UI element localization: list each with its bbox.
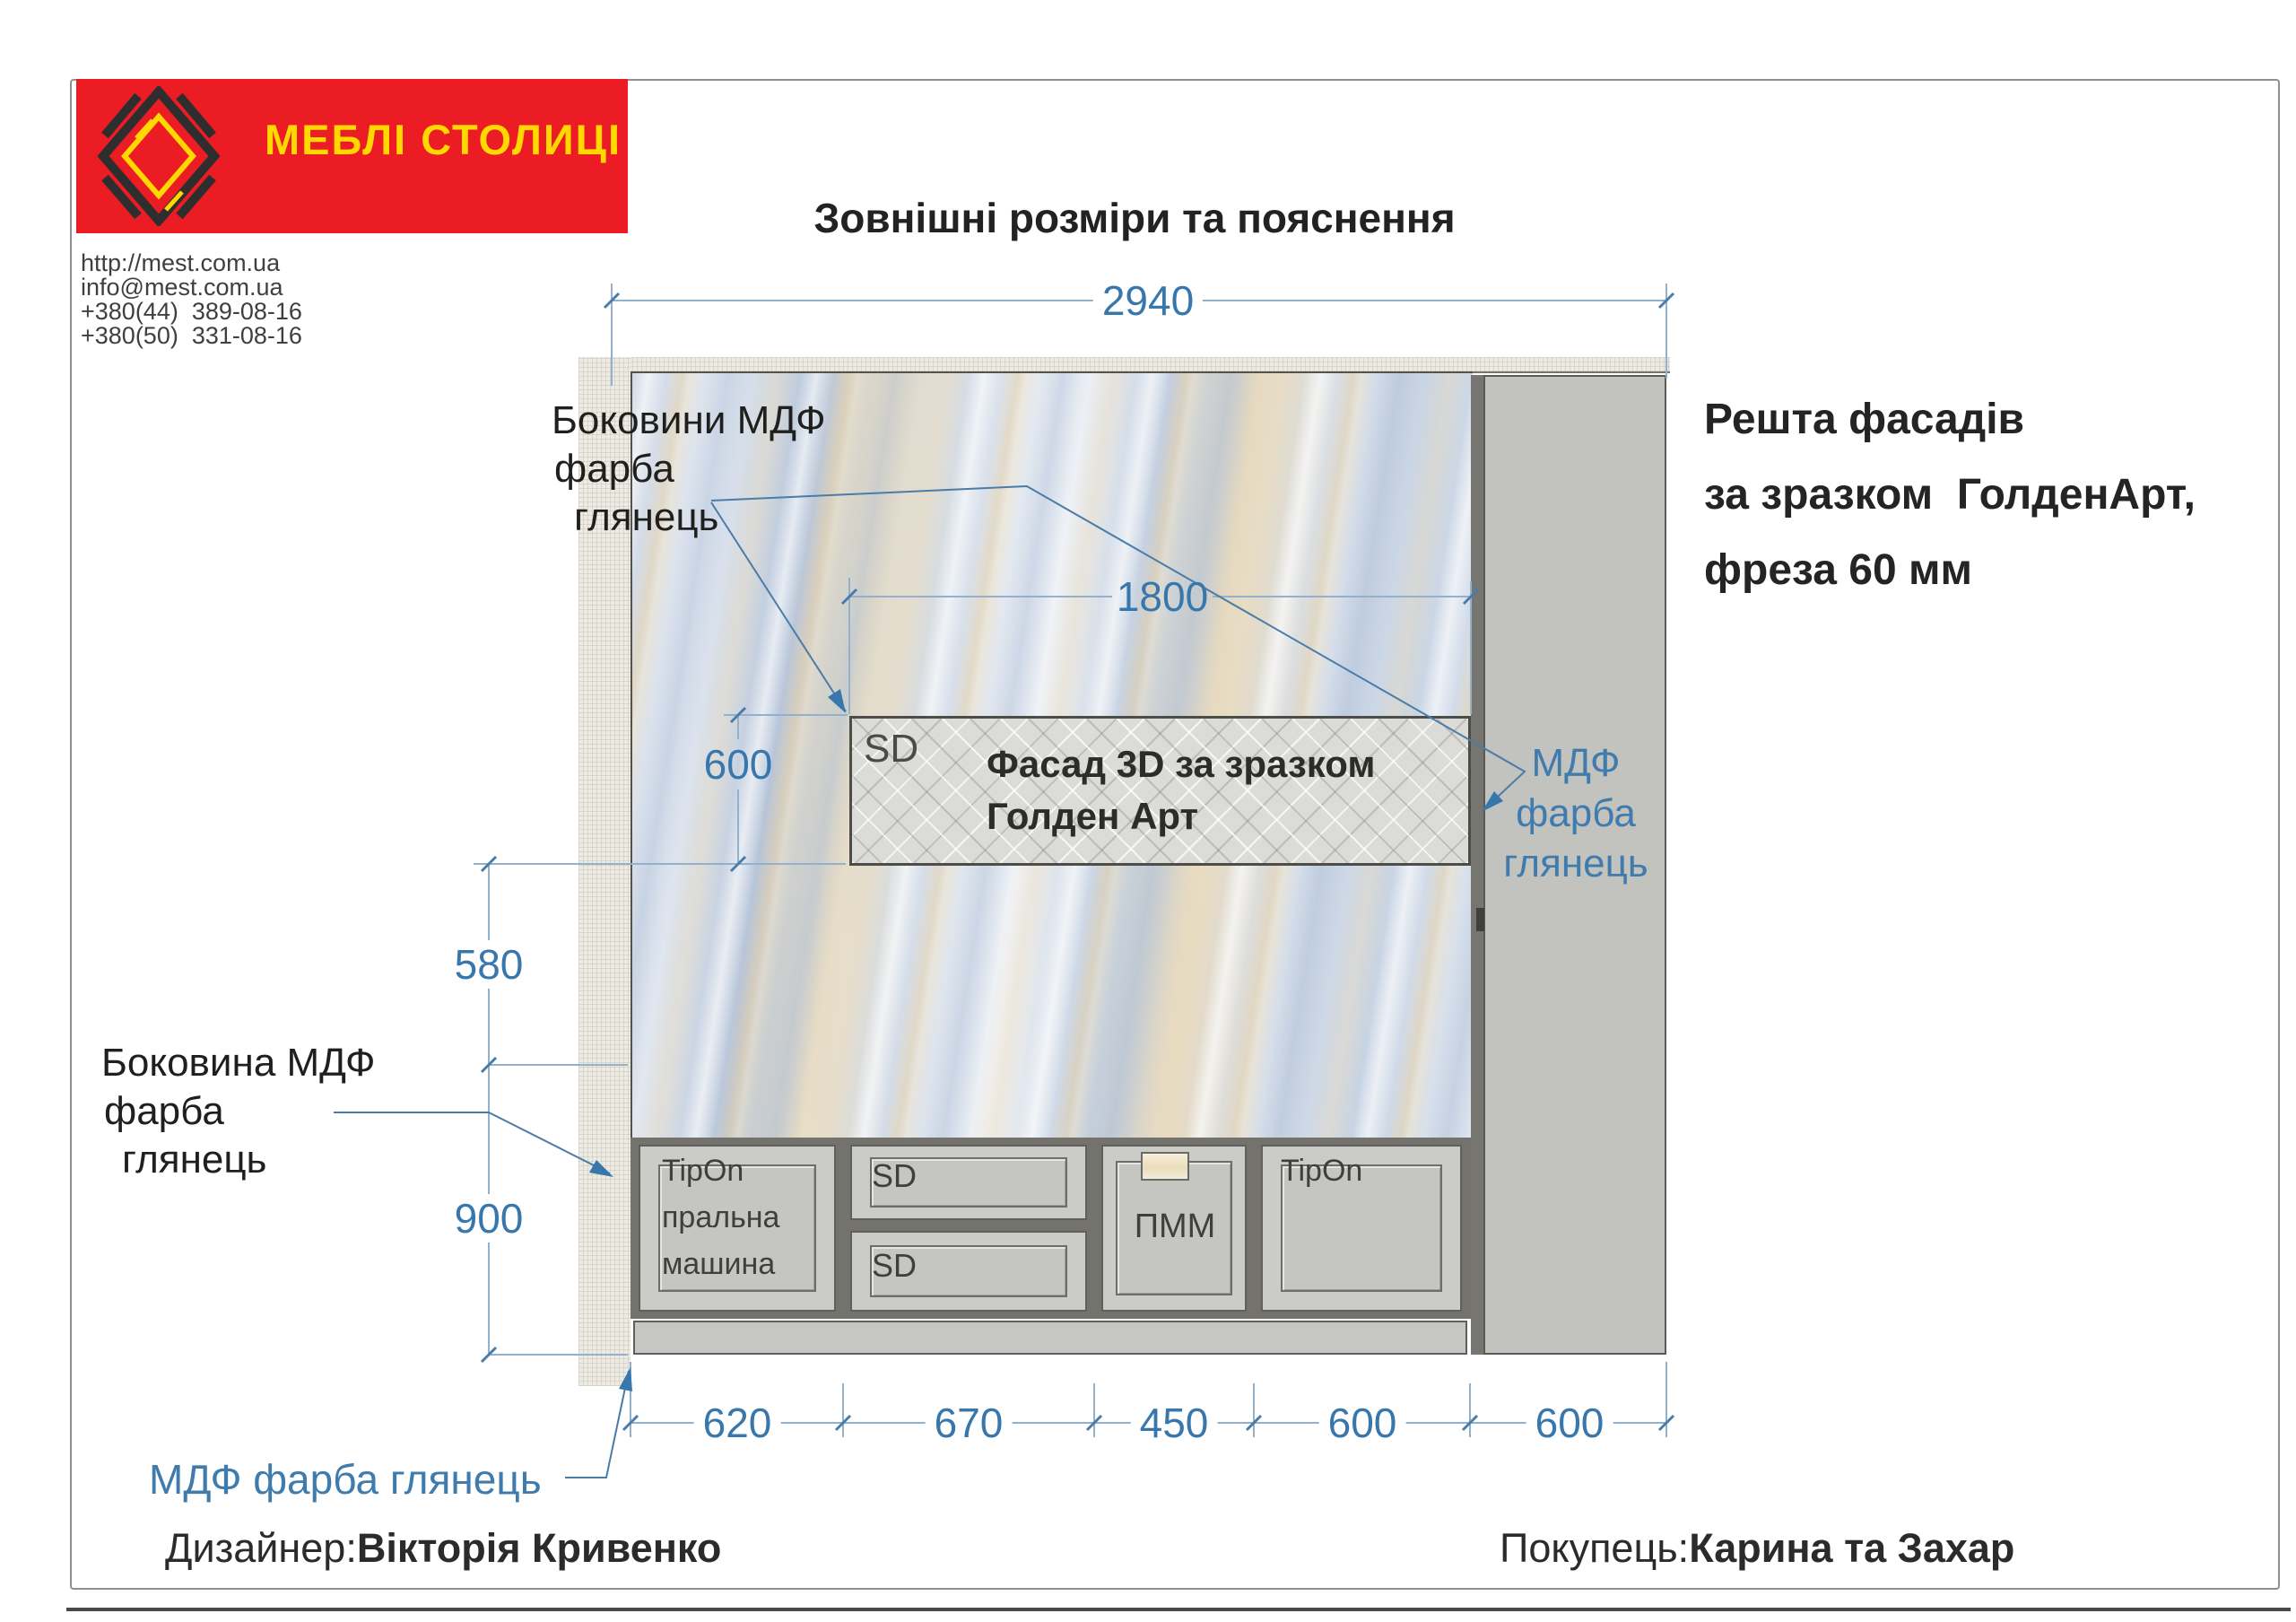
washer-label-line3: машина (662, 1247, 775, 1282)
washer-label-line2: пральна (662, 1200, 779, 1235)
washer-label-line1: TipOn (662, 1154, 744, 1189)
page-bottom-edge (66, 1608, 2291, 1611)
footer-customer: Покупець:Карина та Захар (1500, 1525, 2014, 1572)
dim-bottom-600b: 600 (1526, 1399, 1613, 1447)
dim-bottom-670: 670 (926, 1399, 1013, 1447)
dim-base-height: 900 (446, 1194, 533, 1243)
facade-text-line2: Голден Арт (987, 795, 1198, 838)
dim-facade-width: 1800 (1117, 572, 1208, 621)
designer-label: Дизайнер: (165, 1525, 357, 1571)
dishwasher-handle-cutout (1141, 1152, 1189, 1181)
note-side-left-line2: фарба (104, 1089, 224, 1134)
note-side-left-line1: Боковина МДФ (101, 1041, 375, 1086)
designer-name: Вікторія Кривенко (357, 1525, 722, 1571)
facade-3d-panel (849, 716, 1471, 866)
tall-cabinet-handle-mark (1476, 908, 1484, 931)
note-sides-top-line3: глянець (574, 495, 718, 540)
design-sheet: МЕБЛІ СТОЛИЦІ http://mest.com.ua info@me… (0, 0, 2296, 1622)
note-sides-top-line1: Боковини МДФ (552, 398, 826, 443)
note-sides-top-line2: фарба (554, 447, 674, 492)
customer-label: Покупець: (1500, 1525, 1689, 1571)
drawer-top-label: SD (872, 1157, 917, 1195)
contact-phone-2: +380(50) 331-08-16 (81, 322, 302, 350)
note-mdf-right-line1: МДФ (1500, 741, 1652, 786)
dim-bottom-620: 620 (694, 1399, 781, 1447)
footer-designer: Дизайнер:Вікторія Кривенко (165, 1525, 721, 1572)
page-title: Зовнішні розміри та пояснення (813, 194, 1455, 242)
customer-name: Карина та Захар (1689, 1525, 2014, 1571)
brand-name: МЕБЛІ СТОЛИЦІ (265, 115, 623, 164)
plinth (633, 1321, 1467, 1355)
tall-cabinet-side-panel (1471, 375, 1483, 1355)
dim-bottom-450: 450 (1131, 1399, 1218, 1447)
dim-bottom-600a: 600 (1319, 1399, 1406, 1447)
note-rest-fronts-line2: за зразком ГолденАрт, (1704, 470, 2196, 519)
dim-facade-height: 600 (704, 740, 773, 789)
dim-total-width: 2940 (1093, 276, 1203, 325)
facade-text-line1: Фасад 3D за зразком (987, 743, 1375, 786)
note-mdf-right-line2: фарба (1500, 791, 1652, 836)
note-rest-fronts-line3: фреза 60 мм (1704, 545, 1972, 595)
dishwasher-label: ПММ (1112, 1208, 1238, 1246)
dim-splash-height: 580 (446, 940, 533, 989)
note-mdf-right-line3: глянець (1500, 842, 1652, 886)
facade-sd-tag: SD (864, 727, 918, 772)
logo-diamond-icon (90, 86, 229, 226)
note-mdf-bottom: МДФ фарба глянець (149, 1455, 542, 1504)
note-rest-fronts-line1: Решта фасадів (1704, 395, 2024, 444)
drawer-bottom-label: SD (872, 1247, 917, 1285)
right-door-label: TipOn (1281, 1154, 1362, 1189)
note-side-left-line3: глянець (122, 1138, 266, 1182)
